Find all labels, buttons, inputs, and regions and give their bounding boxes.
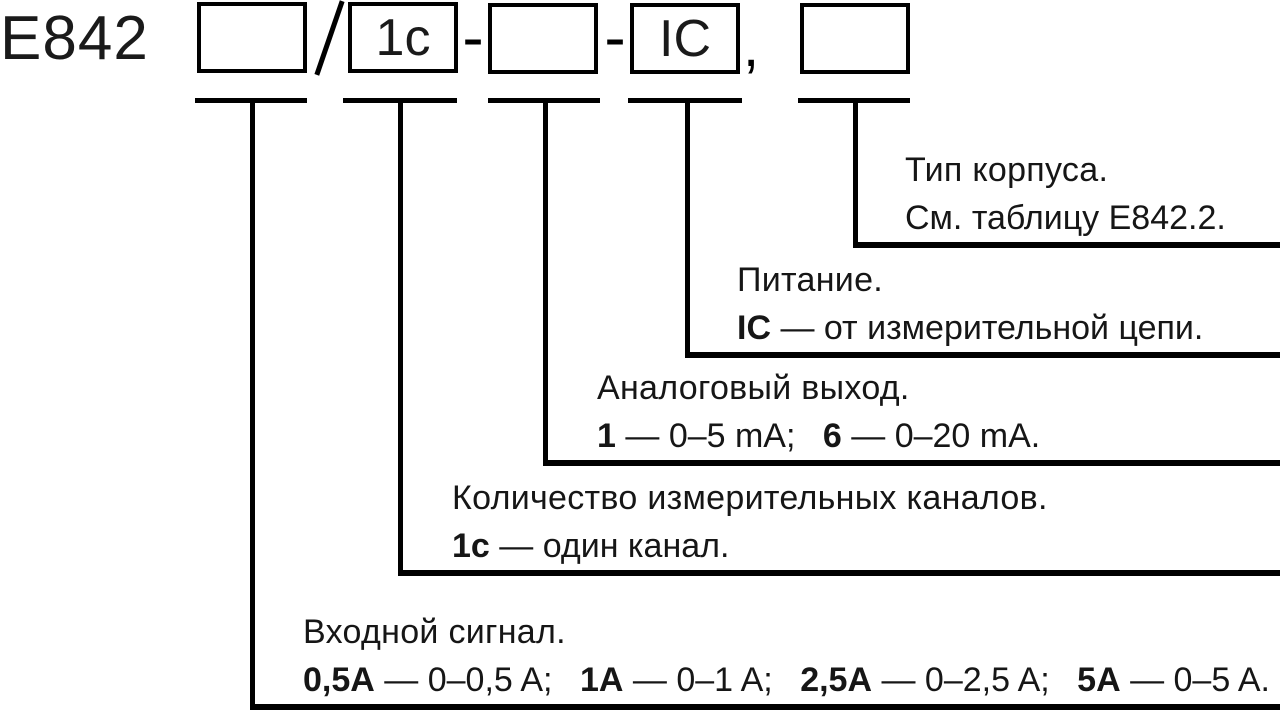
connector-rule-power-supply <box>685 352 1280 358</box>
connector-vline-input-signal <box>250 98 255 710</box>
connector-rule-input-signal <box>250 704 1280 710</box>
option-description: — 0–20 mA. <box>842 417 1040 455</box>
option-segment: 6 — 0–20 mA. <box>823 417 1040 455</box>
option-description: — 0–5 A. <box>1121 661 1270 699</box>
option-code: 1A <box>580 661 623 699</box>
option-description: См. таблицу Е842.2. <box>905 199 1226 237</box>
connector-rule-housing-type <box>853 242 1280 248</box>
ordering-code-diagram: Е842 1c - - IC , Тип корпуса. См. таблиц… <box>0 0 1280 711</box>
option-description: — от измерительной цепи. <box>771 309 1203 347</box>
option-code: IC <box>737 309 771 347</box>
branch-title: Количество измерительных каналов. <box>452 474 1048 522</box>
option-code: 0,5A <box>303 661 375 699</box>
dash-separator: - <box>599 0 631 74</box>
code-box-input-signal <box>197 2 307 73</box>
option-segment: 5A — 0–5 A. <box>1077 661 1270 699</box>
code-box-value: IC <box>659 13 711 65</box>
option-segment: IC — от измерительной цепи. <box>737 309 1203 347</box>
option-segment: 1A — 0–1 A; <box>580 661 773 699</box>
option-segment: См. таблицу Е842.2. <box>905 199 1226 237</box>
branch-analog-output: Аналоговый выход. 1 — 0–5 mA; 6 — 0–20 m… <box>597 364 1040 460</box>
option-segment: 0,5A — 0–0,5 A; <box>303 661 553 699</box>
option-description: — 0–0,5 A; <box>375 661 553 699</box>
dash-separator: - <box>456 0 490 74</box>
code-box-housing-type <box>800 3 910 74</box>
option-code: 2,5A <box>800 661 872 699</box>
option-description: — 0–2,5 A; <box>872 661 1050 699</box>
branch-detail: IC — от измерительной цепи. <box>737 304 1203 352</box>
option-segment: 2,5A — 0–2,5 A; <box>800 661 1050 699</box>
code-box-analog-output <box>488 3 598 74</box>
branch-title: Аналоговый выход. <box>597 364 1040 412</box>
option-code: 5A <box>1077 661 1120 699</box>
option-description: — 0–1 A; <box>623 661 772 699</box>
branch-detail: 1c — один канал. <box>452 522 1048 570</box>
branch-title: Входной сигнал. <box>303 608 1270 656</box>
code-box-channel-count: 1c <box>348 2 458 73</box>
branch-title: Питание. <box>737 256 1203 304</box>
branch-input-signal: Входной сигнал. 0,5A — 0–0,5 A; 1A — 0–1… <box>303 608 1270 704</box>
option-code: 6 <box>823 417 842 455</box>
slash-separator <box>314 0 344 75</box>
branch-detail: См. таблицу Е842.2. <box>905 194 1226 242</box>
connector-rule-analog-output <box>543 460 1280 466</box>
connector-vline-analog-output <box>543 98 548 466</box>
branch-housing-type: Тип корпуса. См. таблицу Е842.2. <box>905 146 1226 242</box>
branch-detail: 1 — 0–5 mA; 6 — 0–20 mA. <box>597 412 1040 460</box>
option-segment: 1c — один канал. <box>452 527 729 565</box>
connector-rule-channel-count <box>398 570 1280 576</box>
model-prefix: Е842 <box>0 8 149 70</box>
option-segment: 1 — 0–5 mA; <box>597 417 795 455</box>
code-box-value: 1c <box>376 12 431 64</box>
option-description: — один канал. <box>490 527 730 565</box>
branch-detail: 0,5A — 0–0,5 A; 1A — 0–1 A; 2,5A — 0–2,5… <box>303 656 1270 704</box>
option-code: 1c <box>452 527 490 565</box>
branch-channel-count: Количество измерительных каналов. 1c — о… <box>452 474 1048 570</box>
connector-vline-power-supply <box>685 98 690 358</box>
code-box-power-supply: IC <box>630 3 740 74</box>
connector-vline-housing-type <box>853 98 858 248</box>
branch-power-supply: Питание. IC — от измерительной цепи. <box>737 256 1203 352</box>
branch-title: Тип корпуса. <box>905 146 1226 194</box>
connector-vline-channel-count <box>398 98 403 576</box>
comma-separator: , <box>743 18 759 76</box>
option-code: 1 <box>597 417 616 455</box>
option-description: — 0–5 mA; <box>616 417 796 455</box>
